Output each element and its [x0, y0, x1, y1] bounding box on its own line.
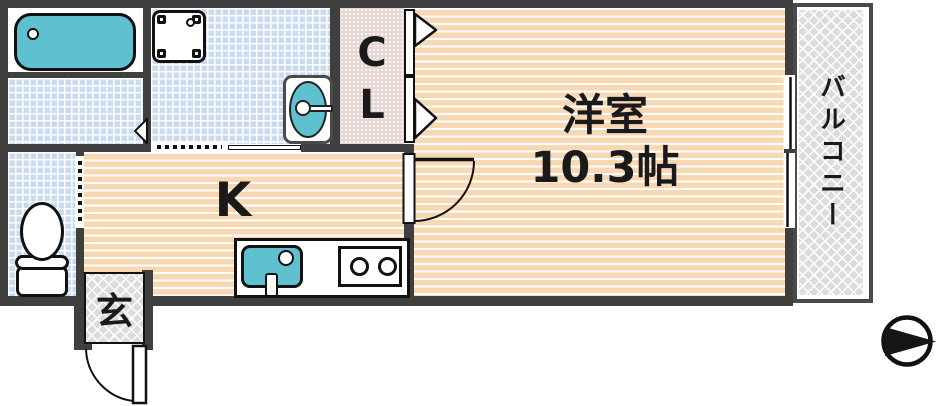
bath-door-icon: [135, 119, 147, 143]
entrance-door-swing-arc: [86, 349, 133, 401]
kitchen-label: K: [200, 170, 266, 230]
closet-door-icon: [415, 99, 436, 138]
closet-label: CL: [338, 18, 406, 146]
western-room-name: 洋室: [562, 90, 648, 142]
western-room-size: 10.3帖: [530, 142, 679, 194]
entrance-door-leaf: [133, 346, 146, 403]
compass-icon: [884, 318, 937, 365]
western-room-label: 洋室 10.3帖: [450, 90, 760, 195]
western-door-jamb: [404, 154, 415, 223]
window-meeting-rail: [784, 149, 795, 153]
plan-overlay: [0, 0, 939, 406]
closet-door-icon: [415, 14, 436, 46]
floor-plan-canvas: バルコニー 玄: [0, 0, 939, 406]
